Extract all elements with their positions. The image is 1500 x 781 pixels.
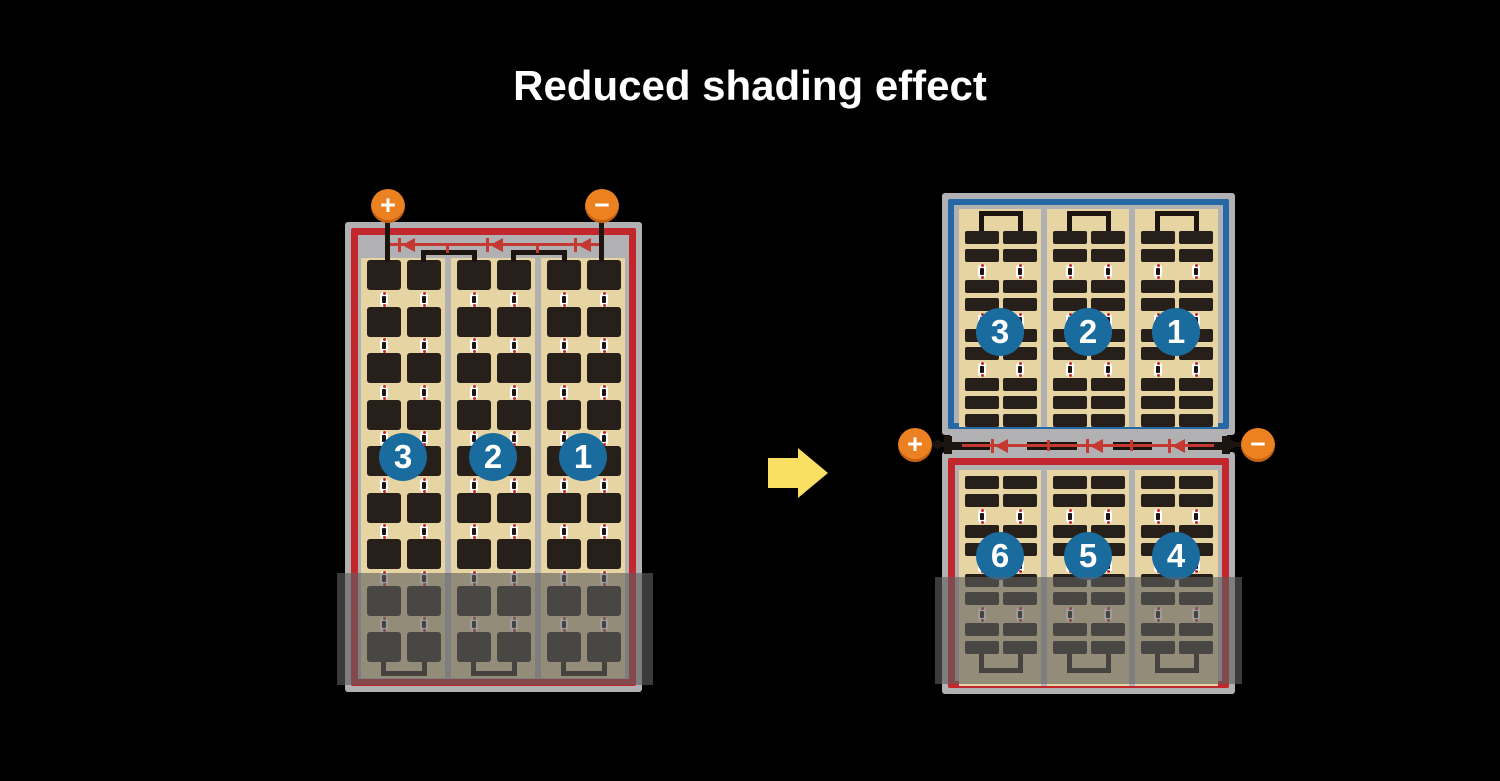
- solar-cell: [497, 307, 531, 337]
- cell-interconnect-dot: [510, 478, 518, 493]
- string-top-connector: [1067, 211, 1111, 231]
- terminal-sign: +: [907, 429, 923, 460]
- terminal-sign: −: [594, 190, 610, 221]
- cell-interconnect-dot: [1016, 509, 1024, 524]
- cell-interconnect-dot: [600, 385, 608, 400]
- half-cell: [1003, 396, 1037, 409]
- solar-cell: [367, 493, 401, 523]
- cell-interconnect-dot: [1104, 362, 1112, 377]
- cell-interconnect-dot: [420, 292, 428, 307]
- solar-cell: [367, 400, 401, 430]
- half-cell: [1141, 280, 1175, 293]
- half-cell: [1053, 476, 1087, 489]
- cell-interconnect-dot: [470, 292, 478, 307]
- cell-interconnect-dot: [510, 338, 518, 353]
- cell-interconnect-dot: [1154, 264, 1162, 279]
- solar-cell: [497, 493, 531, 523]
- solar-cell: [367, 307, 401, 337]
- half-cell: [1179, 280, 1213, 293]
- half-cell: [1091, 476, 1125, 489]
- half-cell: [1141, 231, 1175, 244]
- solar-cell: [587, 400, 621, 430]
- string-number-badge: 1: [559, 433, 607, 481]
- half-cell: [965, 280, 999, 293]
- solar-cell: [457, 539, 491, 569]
- half-cell: [1053, 231, 1087, 244]
- bypass-diode-icon: [398, 238, 420, 252]
- cell-interconnect-dot: [380, 524, 388, 539]
- bypass-diode-icon: [1168, 439, 1190, 453]
- string-divider: [1129, 209, 1135, 427]
- half-cell: [1091, 378, 1125, 391]
- cell-interconnect-dot: [1192, 264, 1200, 279]
- string-number-badge: 3: [976, 308, 1024, 356]
- solar-cell: [587, 539, 621, 569]
- solar-cell: [547, 400, 581, 430]
- wire-lug: [1227, 440, 1236, 449]
- half-cell: [1053, 396, 1087, 409]
- bypass-diode-icon: [574, 238, 596, 252]
- cell-interconnect-dot: [420, 338, 428, 353]
- cell-interconnect-dot: [510, 524, 518, 539]
- half-cell: [965, 476, 999, 489]
- half-cell: [1091, 414, 1125, 427]
- cell-interconnect-dot: [1016, 264, 1024, 279]
- cell-interconnect-dot: [380, 292, 388, 307]
- half-cell: [1003, 378, 1037, 391]
- half-cell: [1053, 280, 1087, 293]
- cell-interconnect-dot: [470, 478, 478, 493]
- cell-interconnect-dot: [420, 385, 428, 400]
- diode-arrow: [1090, 439, 1103, 453]
- cell-interconnect-dot: [978, 509, 986, 524]
- half-cell: [1141, 414, 1175, 427]
- solar-cell: [497, 353, 531, 383]
- half-cell: [965, 414, 999, 427]
- solar-cell: [547, 307, 581, 337]
- string-top-connector: [421, 250, 477, 262]
- solar-cell: [457, 353, 491, 383]
- half-cell: [1141, 494, 1175, 507]
- cell-interconnect-dot: [380, 385, 388, 400]
- solar-cell: [547, 353, 581, 383]
- half-cell: [1003, 231, 1037, 244]
- terminal-sign: −: [1250, 429, 1266, 460]
- cell-interconnect-dot: [1192, 509, 1200, 524]
- bypass-diode-icon: [486, 238, 508, 252]
- solar-cell: [587, 493, 621, 523]
- half-cell: [965, 494, 999, 507]
- cell-interconnect-dot: [380, 338, 388, 353]
- cell-interconnect-dot: [1066, 509, 1074, 524]
- half-cell: [1053, 249, 1087, 262]
- diode-bar: [574, 238, 577, 252]
- reduced-shading-diagram: Reduced shading effect 3 2 1 + − 3 2 1 6…: [0, 0, 1500, 781]
- diode-stub: [1130, 440, 1133, 451]
- diode-bar: [1086, 439, 1089, 453]
- solar-cell: [587, 353, 621, 383]
- half-cell: [1179, 249, 1213, 262]
- cell-interconnect-dot: [560, 292, 568, 307]
- cell-interconnect-dot: [560, 385, 568, 400]
- half-cell: [1003, 476, 1037, 489]
- cell-interconnect-dot: [1192, 362, 1200, 377]
- terminal-sign: +: [380, 190, 396, 221]
- string-top-connector: [511, 250, 567, 262]
- half-cell: [1141, 476, 1175, 489]
- diode-bar: [1168, 439, 1171, 453]
- bypass-diode-icon: [991, 439, 1013, 453]
- string-number-badge: 3: [379, 433, 427, 481]
- plus-terminal-icon: +: [371, 189, 405, 223]
- cell-interconnect-dot: [1066, 264, 1074, 279]
- diode-stub: [1047, 440, 1050, 451]
- half-cell: [965, 231, 999, 244]
- shade-overlay: [935, 577, 1242, 684]
- diode-stub: [536, 243, 539, 253]
- half-cell: [1003, 280, 1037, 293]
- half-cell: [1053, 494, 1087, 507]
- half-cell: [1053, 378, 1087, 391]
- half-cell: [1141, 378, 1175, 391]
- half-cell: [1003, 414, 1037, 427]
- solar-cell: [407, 539, 441, 569]
- half-cell: [965, 249, 999, 262]
- string-number-badge: 2: [1064, 308, 1112, 356]
- solar-cell: [457, 307, 491, 337]
- cell-interconnect-dot: [1154, 509, 1162, 524]
- cell-interconnect-dot: [1154, 362, 1162, 377]
- half-cell: [1053, 414, 1087, 427]
- solar-cell: [457, 260, 491, 290]
- diode-arrow: [1172, 439, 1185, 453]
- half-cell: [1091, 494, 1125, 507]
- cell-interconnect-dot: [600, 478, 608, 493]
- cell-interconnect-dot: [978, 362, 986, 377]
- half-cell: [1179, 476, 1213, 489]
- solar-cell: [497, 400, 531, 430]
- cell-interconnect-dot: [1066, 362, 1074, 377]
- cell-interconnect-dot: [380, 478, 388, 493]
- cell-interconnect-dot: [510, 385, 518, 400]
- half-cell: [965, 378, 999, 391]
- half-cell: [1091, 249, 1125, 262]
- half-cell: [1003, 494, 1037, 507]
- cell-interconnect-dot: [978, 264, 986, 279]
- half-cell: [1179, 378, 1213, 391]
- half-cell: [965, 396, 999, 409]
- cell-interconnect-dot: [510, 292, 518, 307]
- shade-overlay: [337, 573, 653, 685]
- solar-cell: [457, 493, 491, 523]
- string-number-badge: 4: [1152, 532, 1200, 580]
- diode-arrow: [578, 238, 591, 252]
- half-cell: [1091, 231, 1125, 244]
- diode-arrow: [490, 238, 503, 252]
- solar-cell: [367, 260, 401, 290]
- cell-interconnect-dot: [600, 292, 608, 307]
- string-top-connector: [1155, 211, 1199, 231]
- half-cell: [1141, 249, 1175, 262]
- solar-cell: [407, 353, 441, 383]
- half-cell: [1141, 396, 1175, 409]
- half-cell: [1179, 231, 1213, 244]
- half-cell: [1179, 494, 1213, 507]
- cell-interconnect-dot: [600, 338, 608, 353]
- cell-interconnect-dot: [470, 524, 478, 539]
- solar-cell: [407, 400, 441, 430]
- half-cell: [1091, 280, 1125, 293]
- solar-cell: [367, 353, 401, 383]
- cell-interconnect-dot: [600, 524, 608, 539]
- diode-arrow: [995, 439, 1008, 453]
- solar-cell: [497, 539, 531, 569]
- solar-cell: [407, 260, 441, 290]
- solar-cell: [587, 307, 621, 337]
- diagram-title: Reduced shading effect: [0, 62, 1500, 110]
- cell-interconnect-dot: [420, 478, 428, 493]
- solar-cell: [457, 400, 491, 430]
- half-cell: [1003, 249, 1037, 262]
- cell-interconnect-dot: [1016, 362, 1024, 377]
- wire-lug: [933, 440, 942, 449]
- bypass-diode-icon: [1086, 439, 1108, 453]
- solar-cell: [407, 493, 441, 523]
- cell-interconnect-dot: [1104, 264, 1112, 279]
- solar-cell: [547, 493, 581, 523]
- cell-interconnect-dot: [560, 524, 568, 539]
- string-number-badge: 1: [1152, 308, 1200, 356]
- diode-stub: [446, 243, 449, 253]
- half-cell: [1179, 414, 1213, 427]
- solar-cell: [497, 260, 531, 290]
- diode-bar: [398, 238, 401, 252]
- plus-terminal-icon: +: [898, 428, 932, 462]
- minus-terminal-icon: −: [585, 189, 619, 223]
- string-number-badge: 6: [976, 532, 1024, 580]
- cell-interconnect-dot: [560, 478, 568, 493]
- string-number-badge: 2: [469, 433, 517, 481]
- solar-cell: [367, 539, 401, 569]
- string-divider: [1041, 209, 1047, 427]
- right-arrow-icon: [768, 448, 828, 498]
- solar-cell: [547, 539, 581, 569]
- diode-bar: [991, 439, 994, 453]
- cell-interconnect-dot: [470, 385, 478, 400]
- cell-interconnect-dot: [1104, 509, 1112, 524]
- solar-cell: [407, 307, 441, 337]
- half-cell: [1179, 396, 1213, 409]
- solar-cell: [547, 260, 581, 290]
- cell-interconnect-dot: [470, 338, 478, 353]
- cell-interconnect-dot: [420, 524, 428, 539]
- string-top-connector: [979, 211, 1023, 231]
- diode-bar: [486, 238, 489, 252]
- string-number-badge: 5: [1064, 532, 1112, 580]
- half-cell: [1091, 396, 1125, 409]
- cell-interconnect-dot: [560, 338, 568, 353]
- minus-terminal-icon: −: [1241, 428, 1275, 462]
- solar-cell: [587, 260, 621, 290]
- diode-arrow: [402, 238, 415, 252]
